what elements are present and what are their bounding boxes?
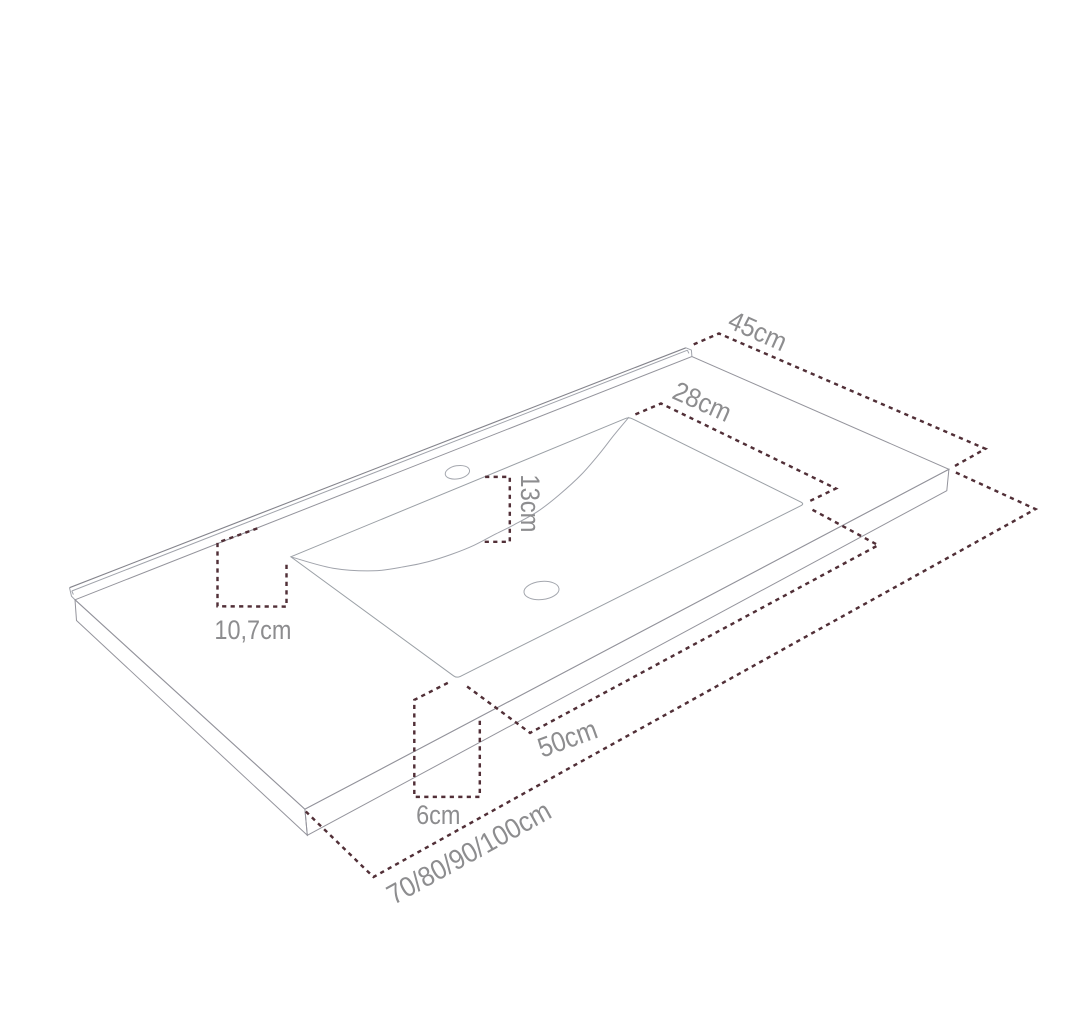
svg-text:10,7cm: 10,7cm (214, 616, 291, 646)
svg-text:13cm: 13cm (515, 474, 545, 532)
svg-text:6cm: 6cm (416, 801, 460, 831)
svg-text:28cm: 28cm (668, 377, 735, 428)
svg-text:70/80/90/100cm: 70/80/90/100cm (381, 795, 556, 911)
